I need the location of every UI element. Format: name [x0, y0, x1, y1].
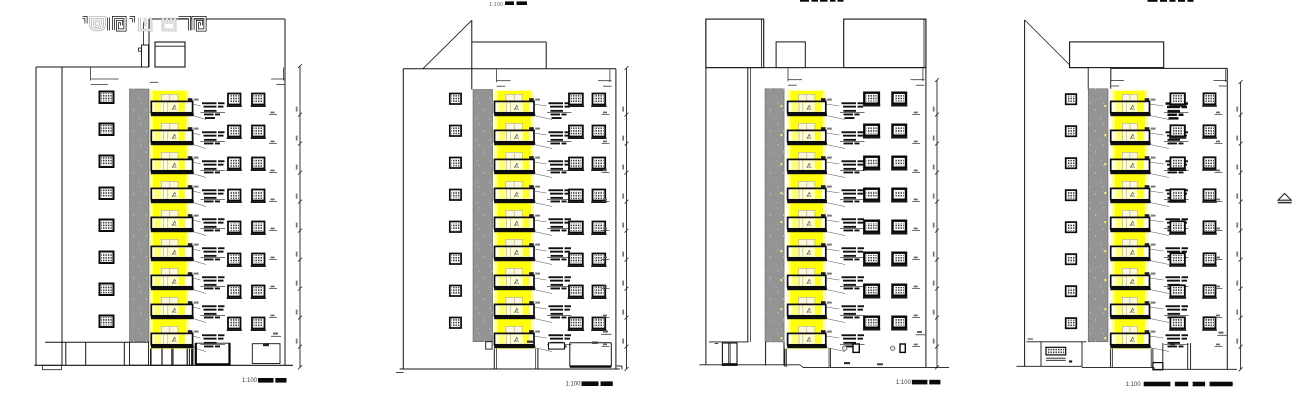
- svg-text:1:100: 1:100: [1126, 382, 1142, 388]
- svg-text:1:100: 1:100: [566, 382, 582, 388]
- svg-text:1:100: 1:100: [242, 378, 258, 384]
- svg-text:1:100: 1:100: [489, 2, 503, 8]
- svg-text:1:100: 1:100: [896, 380, 912, 386]
